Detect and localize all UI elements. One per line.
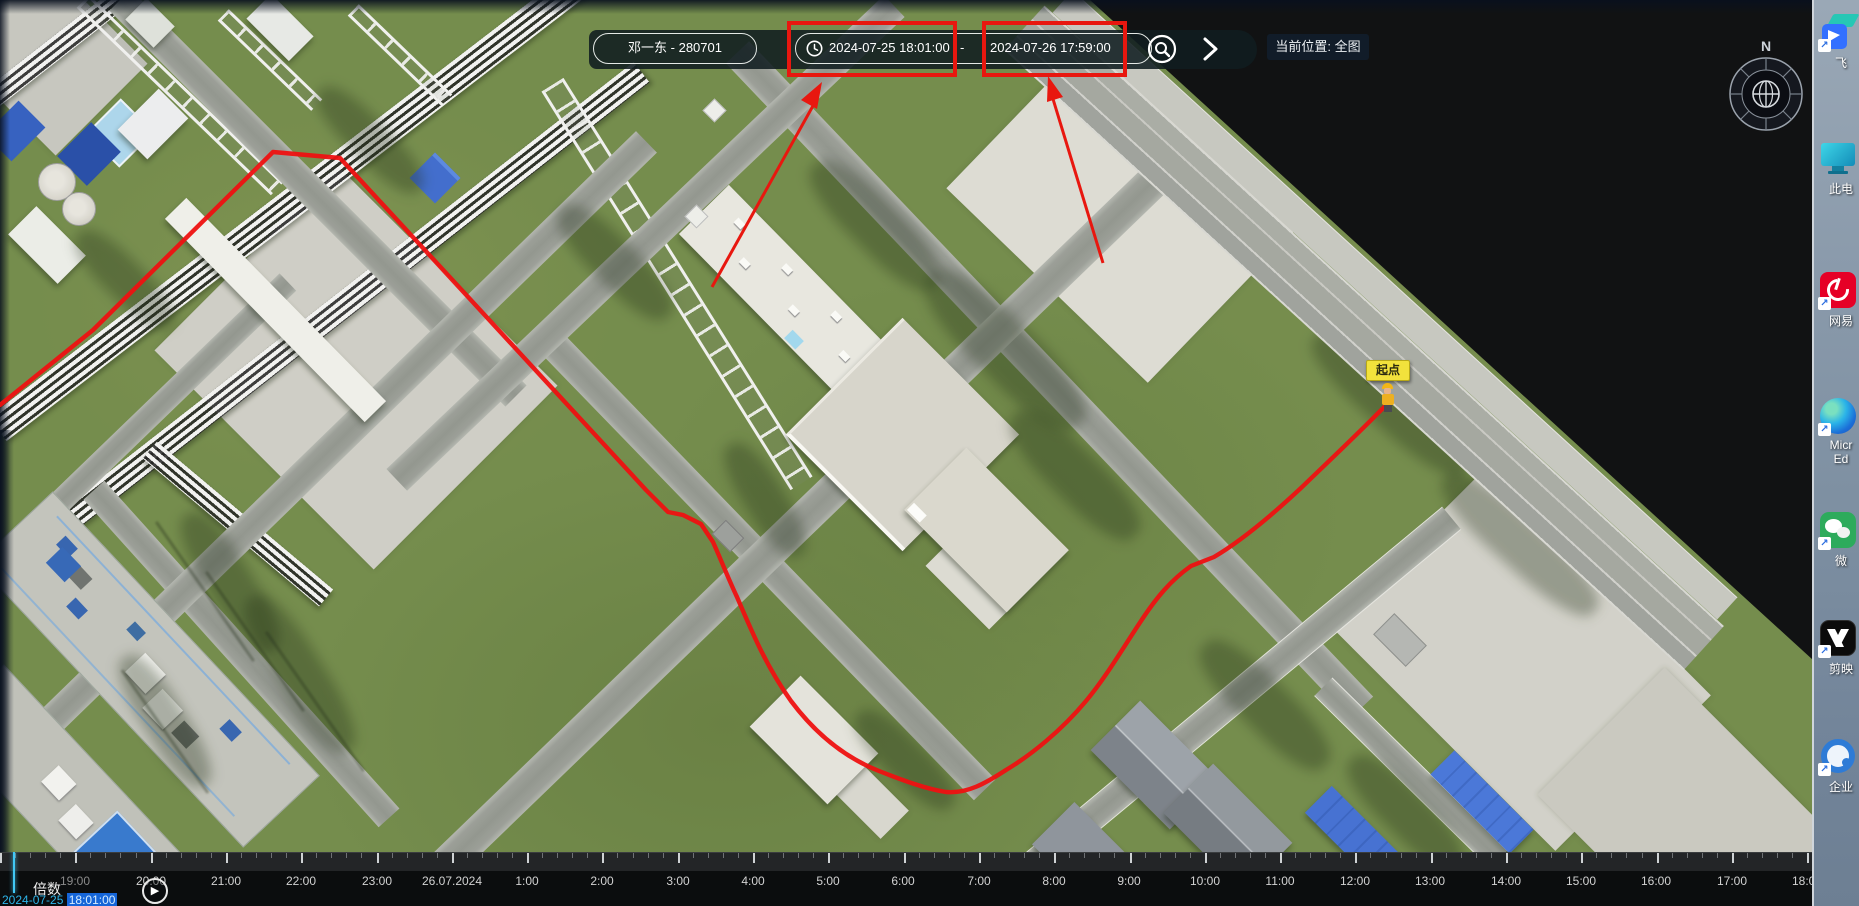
clarifier-tank <box>62 192 96 226</box>
timeline-minor-tick <box>723 853 724 858</box>
timeline-ruler[interactable] <box>0 852 1813 871</box>
playback-timeline[interactable]: 19:00 20:00 21:00 22:00 23:00 26.07.2024… <box>0 852 1813 906</box>
timeline-tick-label: 14:00 <box>1491 874 1521 888</box>
current-location-status: 当前位置: 全图 <box>1267 34 1369 60</box>
desktop-icon-feishu[interactable]: ↗ 飞 <box>1819 14 1859 71</box>
timeline-major-tick <box>75 853 77 863</box>
timeline-tick-label: 9:00 <box>1117 874 1140 888</box>
person-marker[interactable] <box>1379 383 1397 415</box>
timeline-minor-tick <box>557 853 558 858</box>
timeline-minor-tick <box>1220 853 1221 858</box>
timeline-minor-tick <box>1596 853 1597 858</box>
timeline-tick-label: 19:00 <box>60 874 90 888</box>
timeline-minor-tick <box>1024 853 1025 858</box>
timeline-major-tick <box>753 853 755 863</box>
netease-music-icon: ↗ <box>1820 272 1856 308</box>
shortcut-arrow-icon: ↗ <box>1818 39 1831 52</box>
date-separator: - <box>960 34 964 62</box>
timeline-minor-tick <box>1626 853 1627 858</box>
timeline-minor-tick <box>497 853 498 858</box>
this-pc-icon <box>1820 140 1856 176</box>
timeline-minor-tick <box>467 853 468 858</box>
timeline-minor-tick <box>1792 853 1793 858</box>
white-tank <box>41 765 76 800</box>
equipment-pad <box>702 98 726 122</box>
person-select[interactable]: 邓一东 - 280701 <box>593 33 757 64</box>
jianying-icon: ↗ <box>1820 620 1856 656</box>
timeline-minor-tick <box>166 853 167 858</box>
desktop-icon-this-pc[interactable]: 此电 <box>1819 140 1859 197</box>
blue-tank <box>126 621 146 641</box>
timeline-minor-tick <box>361 853 362 858</box>
shortcut-arrow-icon: ↗ <box>1818 423 1831 436</box>
desktop-icon-label: 剪映 <box>1819 660 1859 677</box>
desktop-strip: ↗ 飞 此电 ↗ 网易 ↗ M <box>1813 0 1859 906</box>
timeline-tick-label: 13:00 <box>1415 874 1445 888</box>
timeline-playhead[interactable] <box>13 852 15 893</box>
timeline-major-tick <box>1355 853 1357 863</box>
timeline-minor-tick <box>1672 853 1673 858</box>
timeline-tick-label: 15:00 <box>1566 874 1596 888</box>
timeline-major-tick <box>226 853 228 863</box>
desktop-icon-netease-music[interactable]: ↗ 网易 <box>1819 272 1859 329</box>
timeline-minor-tick <box>949 853 950 858</box>
play-icon: ▶ <box>151 885 159 897</box>
timeline-minor-tick <box>693 853 694 858</box>
timeline-minor-tick <box>798 853 799 858</box>
timeline-major-tick <box>1280 853 1282 863</box>
timeline-minor-tick <box>482 853 483 858</box>
timeline-major-tick <box>828 853 830 863</box>
timeline-minor-tick <box>1521 853 1522 858</box>
search-icon <box>1146 33 1178 65</box>
search-button[interactable] <box>1146 33 1178 65</box>
person-body <box>1382 394 1394 405</box>
timeline-minor-tick <box>392 853 393 858</box>
timeline-minor-tick <box>768 853 769 858</box>
timeline-minor-tick <box>105 853 106 858</box>
shortcut-arrow-icon: ↗ <box>1818 537 1831 550</box>
timeline-minor-tick <box>889 853 890 858</box>
timeline-minor-tick <box>422 853 423 858</box>
timeline-major-tick <box>452 853 454 863</box>
timeline-minor-tick <box>783 853 784 858</box>
person-legs <box>1384 405 1392 412</box>
timeline-minor-tick <box>1551 853 1552 858</box>
timeline-minor-tick <box>934 853 935 858</box>
feishu-icon: ↗ <box>1820 14 1856 50</box>
timeline-major-tick <box>151 853 153 863</box>
timeline-minor-tick <box>1762 853 1763 858</box>
timeline-minor-tick <box>1446 853 1447 858</box>
desktop-icon-label: 企业 <box>1819 778 1859 795</box>
timeline-minor-tick <box>181 853 182 858</box>
desktop-icon-label: 飞 <box>1819 54 1859 71</box>
timeline-major-tick <box>1205 853 1207 863</box>
timeline-minor-tick <box>813 853 814 858</box>
roof-unit <box>838 350 850 362</box>
compass-widget[interactable]: N <box>1728 38 1804 138</box>
timeline-minor-tick <box>1386 853 1387 858</box>
timeline-minor-tick <box>1702 853 1703 858</box>
timeline-minor-tick <box>1084 853 1085 858</box>
timeline-minor-tick <box>437 853 438 858</box>
timeline-minor-tick <box>648 853 649 858</box>
timeline-major-tick <box>678 853 680 863</box>
timeline-tick-label: 3:00 <box>666 874 689 888</box>
roof-unit <box>830 310 842 322</box>
timeline-tick-label: 6:00 <box>891 874 914 888</box>
timeline-tick-label: 22:00 <box>286 874 316 888</box>
timeline-minor-tick <box>542 853 543 858</box>
start-point-label[interactable]: 起点 <box>1366 360 1410 381</box>
timeline-minor-tick <box>1039 853 1040 858</box>
timeline-major-tick <box>602 853 604 863</box>
timeline-major-tick <box>377 853 379 863</box>
desktop-icon-wecom[interactable]: ↗ 企业 <box>1819 738 1859 795</box>
timeline-minor-tick <box>1491 853 1492 858</box>
play-button[interactable]: ▶ <box>142 878 168 904</box>
timeline-tick-label: 1:00 <box>515 874 538 888</box>
timeline-minor-tick <box>30 853 31 858</box>
timeline-tick-label: 18:00 <box>1792 874 1813 888</box>
timeline-major-tick <box>527 853 529 863</box>
microsoft-edge-icon: ↗ <box>1820 398 1856 434</box>
timeline-minor-tick <box>738 853 739 858</box>
timeline-tick-label: 21:00 <box>211 874 241 888</box>
timeline-minor-tick <box>1687 853 1688 858</box>
timeline-minor-tick <box>919 853 920 858</box>
next-button[interactable] <box>1193 33 1225 65</box>
timeline-tick-label: 7:00 <box>967 874 990 888</box>
wechat-icon: ↗ <box>1820 512 1856 548</box>
timeline-minor-tick <box>1145 853 1146 858</box>
timeline-minor-tick <box>256 853 257 858</box>
timeline-minor-tick <box>572 853 573 858</box>
timeline-minor-tick <box>617 853 618 858</box>
roof-pool <box>784 330 804 350</box>
timeline-minor-tick <box>1310 853 1311 858</box>
timeline-date-label: 26.07.2024 <box>422 874 482 888</box>
timeline-tick-label: 23:00 <box>362 874 392 888</box>
timeline-minor-tick <box>1642 853 1643 858</box>
timeline-minor-tick <box>1175 853 1176 858</box>
annotation-box-start-date <box>787 21 957 77</box>
timeline-major-tick <box>1657 853 1659 863</box>
timeline-minor-tick <box>241 853 242 858</box>
timeline-minor-tick <box>1536 853 1537 858</box>
timeline-tick-label: 12:00 <box>1340 874 1370 888</box>
timeline-tick-label: 16:00 <box>1641 874 1671 888</box>
desktop-icon-jianying[interactable]: ↗ 剪映 <box>1819 620 1859 677</box>
timeline-minor-tick <box>1235 853 1236 858</box>
compass-icon <box>1728 56 1804 132</box>
timeline-major-tick <box>1581 853 1583 863</box>
timeline-major-tick <box>0 853 2 863</box>
timeline-minor-tick <box>1401 853 1402 858</box>
timeline-tick-label: 11:00 <box>1265 874 1294 888</box>
chevron-right-icon <box>1193 33 1225 65</box>
timeline-minor-tick <box>271 853 272 858</box>
desktop-icon-microsoft-edge[interactable]: ↗ Micr Ed <box>1819 398 1859 466</box>
timeline-minor-tick <box>1461 853 1462 858</box>
timeline-minor-tick <box>1114 853 1115 858</box>
desktop-icon-wechat[interactable]: ↗ 微 <box>1819 512 1859 569</box>
timeline-tick-label: 5:00 <box>816 874 839 888</box>
shortcut-arrow-icon: ↗ <box>1818 297 1831 310</box>
timeline-minor-tick <box>1717 853 1718 858</box>
wecom-icon: ↗ <box>1820 738 1856 774</box>
timeline-minor-tick <box>964 853 965 858</box>
shortcut-arrow-icon: ↗ <box>1818 645 1831 658</box>
timeline-tick-label: 8:00 <box>1042 874 1065 888</box>
timeline-major-tick <box>979 853 981 863</box>
white-tank <box>58 804 93 839</box>
roof-unit <box>781 263 793 275</box>
timeline-minor-tick <box>843 853 844 858</box>
desktop-icon-label: Micr <box>1819 438 1859 452</box>
timeline-minor-tick <box>663 853 664 858</box>
blue-tank <box>219 719 242 742</box>
timeline-minor-tick <box>1476 853 1477 858</box>
timeline-minor-tick <box>1416 853 1417 858</box>
timeline-tick-label: 17:00 <box>1717 874 1747 888</box>
roof-unit <box>739 257 751 269</box>
timeline-minor-tick <box>1160 853 1161 858</box>
current-clock-text: 18:01:00 <box>67 893 118 906</box>
timeline-minor-tick <box>1566 853 1567 858</box>
timeline-tick-label: 10:00 <box>1190 874 1220 888</box>
desktop-icon-label: Ed <box>1819 452 1859 466</box>
map-edge-fade <box>0 430 14 852</box>
timeline-major-tick <box>1732 853 1734 863</box>
timeline-minor-tick <box>1325 853 1326 858</box>
timeline-minor-tick <box>90 853 91 858</box>
timeline-major-tick <box>301 853 303 863</box>
annotation-box-end-date <box>982 21 1127 77</box>
timeline-minor-tick <box>1370 853 1371 858</box>
timeline-major-tick <box>1506 853 1508 863</box>
desktop-icon-label: 微 <box>1819 552 1859 569</box>
roof-unit <box>788 304 800 316</box>
map-edge-fade <box>0 0 1813 14</box>
timeline-minor-tick <box>211 853 212 858</box>
timeline-minor-tick <box>286 853 287 858</box>
timeline-minor-tick <box>346 853 347 858</box>
timeline-minor-tick <box>858 853 859 858</box>
timeline-minor-tick <box>120 853 121 858</box>
timeline-minor-tick <box>708 853 709 858</box>
timeline-minor-tick <box>1009 853 1010 858</box>
timeline-major-tick <box>1431 853 1433 863</box>
timeline-minor-tick <box>136 853 137 858</box>
pipe-bridge <box>348 4 453 106</box>
timeline-minor-tick <box>994 853 995 858</box>
timeline-minor-tick <box>196 853 197 858</box>
timeline-minor-tick <box>512 853 513 858</box>
timeline-minor-tick <box>1069 853 1070 858</box>
timeline-minor-tick <box>1295 853 1296 858</box>
timeline-major-tick <box>904 853 906 863</box>
shortcut-arrow-icon: ↗ <box>1818 763 1831 776</box>
timeline-tick-label: 2:00 <box>590 874 613 888</box>
timeline-minor-tick <box>316 853 317 858</box>
timeline-minor-tick <box>1265 853 1266 858</box>
map-viewport[interactable] <box>0 0 1813 852</box>
timeline-minor-tick <box>60 853 61 858</box>
compass-north-label: N <box>1728 38 1804 54</box>
desktop-icon-label: 此电 <box>1819 180 1859 197</box>
timeline-minor-tick <box>407 853 408 858</box>
app-screen: 起点 邓一东 - 280701 2024-07-25 18:01:00 - 20… <box>0 0 1859 906</box>
timeline-minor-tick <box>1190 853 1191 858</box>
timeline-major-tick <box>1054 853 1056 863</box>
timeline-major-tick <box>1807 853 1809 863</box>
speed-multiplier-label[interactable]: 倍数 <box>33 879 61 899</box>
timeline-minor-tick <box>1611 853 1612 858</box>
timeline-minor-tick <box>873 853 874 858</box>
desktop-icon-label: 网易 <box>1819 312 1859 329</box>
blue-tank <box>66 598 88 620</box>
window-edge <box>1812 0 1814 906</box>
timeline-minor-tick <box>15 853 16 858</box>
timeline-minor-tick <box>331 853 332 858</box>
timeline-tick-label: 4:00 <box>741 874 764 888</box>
timeline-major-tick <box>1130 853 1132 863</box>
timeline-minor-tick <box>587 853 588 858</box>
timeline-minor-tick <box>1099 853 1100 858</box>
timeline-minor-tick <box>1340 853 1341 858</box>
timeline-minor-tick <box>633 853 634 858</box>
timeline-minor-tick <box>1777 853 1778 858</box>
timeline-minor-tick <box>1250 853 1251 858</box>
timeline-minor-tick <box>45 853 46 858</box>
roof-unit <box>733 217 745 229</box>
timeline-minor-tick <box>1747 853 1748 858</box>
